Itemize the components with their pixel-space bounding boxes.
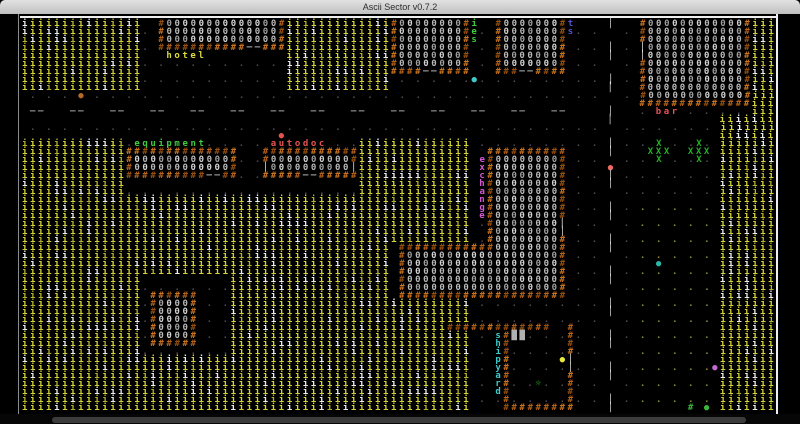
window-bottom-bar bbox=[0, 414, 800, 424]
window-resize-grip[interactable] bbox=[52, 417, 746, 423]
screen-left-border bbox=[18, 14, 19, 414]
window-title: Ascii Sector v0.7.2 bbox=[363, 2, 438, 12]
window-titlebar[interactable]: Ascii Sector v0.7.2 bbox=[0, 0, 800, 15]
map-row: iiiiiiiiiiiiiiiiiiiiiiiiiiiiiiiiiiiiiiii… bbox=[22, 404, 777, 412]
game-screen: iiiiiiiiiiiiiii #00000000000000#iiiiiiii… bbox=[0, 14, 800, 414]
screen-top-border bbox=[20, 16, 777, 18]
ascii-map-viewport[interactable]: iiiiiiiiiiiiiii #00000000000000#iiiiiiii… bbox=[22, 20, 777, 412]
app-window: Ascii Sector v0.7.2 iiiiiiiiiiiiiii #000… bbox=[0, 0, 800, 424]
